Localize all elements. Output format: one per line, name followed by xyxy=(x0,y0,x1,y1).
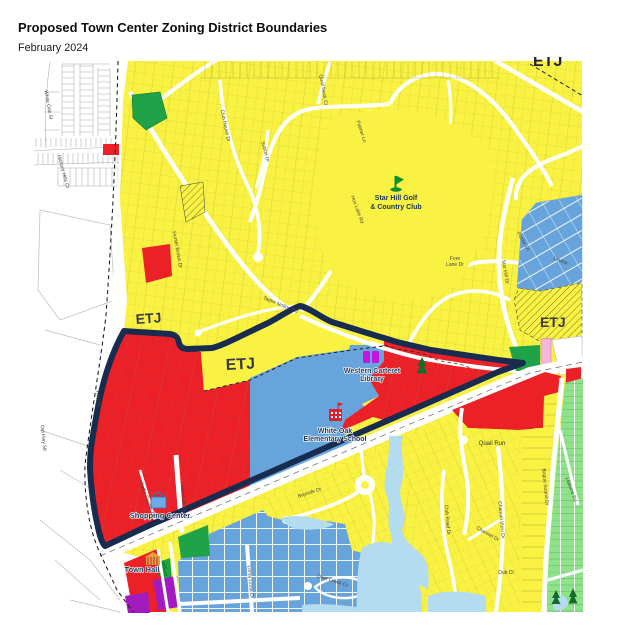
svg-text:Western Carteret: Western Carteret xyxy=(344,368,401,375)
svg-text:February 2024: February 2024 xyxy=(18,42,88,54)
svg-text:Star Hill Golf: Star Hill Golf xyxy=(375,195,418,202)
svg-text:& Country Club: & Country Club xyxy=(370,204,421,211)
svg-text:Quail Run: Quail Run xyxy=(479,441,506,447)
svg-text:Proposed Town Center Zoning Di: Proposed Town Center Zoning District Bou… xyxy=(18,20,327,35)
svg-text:Elementary School: Elementary School xyxy=(303,436,366,443)
svg-text:ETJ: ETJ xyxy=(540,314,566,330)
svg-text:ETJ: ETJ xyxy=(225,355,255,374)
svg-text:Dub Ct: Dub Ct xyxy=(498,570,514,576)
svg-text:Lane Dr: Lane Dr xyxy=(446,262,464,268)
svg-text:Library: Library xyxy=(360,376,384,383)
svg-text:White Oak: White Oak xyxy=(318,428,352,435)
svg-text:ETJ: ETJ xyxy=(135,309,162,327)
svg-text:Town Hall: Town Hall xyxy=(125,565,160,574)
